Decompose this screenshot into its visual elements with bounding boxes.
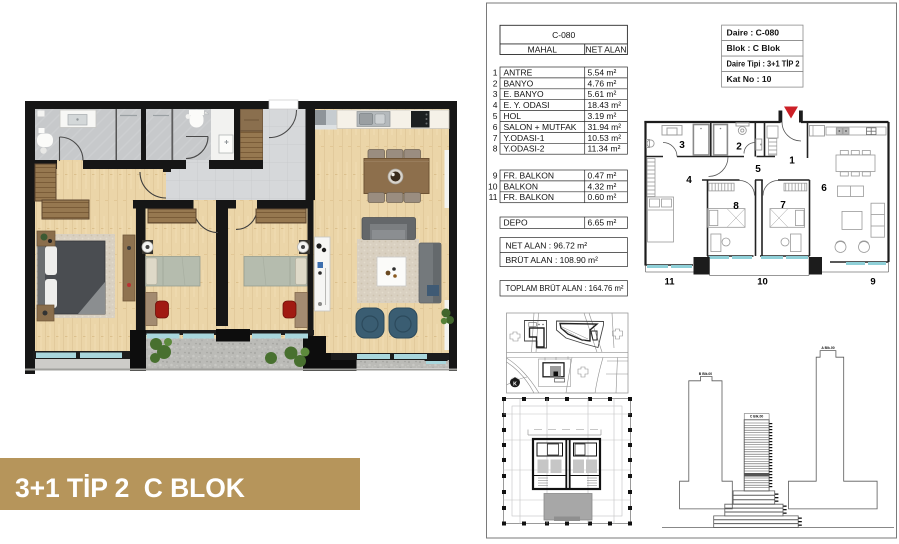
svg-text:FR. BALKON: FR. BALKON <box>504 170 555 180</box>
svg-text:NET ALAN : 96.72 m²: NET ALAN : 96.72 m² <box>506 240 588 250</box>
svg-text:11: 11 <box>489 192 498 202</box>
svg-text:MAHAL: MAHAL <box>528 45 558 55</box>
svg-text:E. Y. ODASI: E. Y. ODASI <box>504 100 550 110</box>
svg-text:BRÜT ALAN : 108.90 m²: BRÜT ALAN : 108.90 m² <box>506 255 599 265</box>
svg-text:0.60 m²: 0.60 m² <box>588 192 617 202</box>
svg-text:Y.ODASI-1: Y.ODASI-1 <box>504 133 545 143</box>
svg-text:FR. BALKON: FR. BALKON <box>504 192 555 202</box>
svg-text:7: 7 <box>493 133 498 143</box>
svg-text:4: 4 <box>686 175 692 186</box>
svg-text:4.32 m²: 4.32 m² <box>588 181 617 191</box>
svg-text:DEPO: DEPO <box>504 218 528 228</box>
svg-text:1: 1 <box>493 67 498 77</box>
svg-text:K: K <box>513 381 517 387</box>
svg-text:ANTRE: ANTRE <box>504 67 533 77</box>
svg-text:4.76 m²: 4.76 m² <box>588 78 617 88</box>
svg-text:4: 4 <box>493 100 498 110</box>
svg-text:6.65 m²: 6.65 m² <box>588 218 617 228</box>
svg-text:1: 1 <box>789 156 795 167</box>
svg-text:C-080: C-080 <box>552 30 575 40</box>
svg-text:5.61 m²: 5.61 m² <box>588 89 617 99</box>
svg-text:TOPLAM BRÜT ALAN : 164.76 m²: TOPLAM BRÜT ALAN : 164.76 m² <box>506 283 624 293</box>
svg-text:3: 3 <box>679 140 685 151</box>
svg-text:3.19 m²: 3.19 m² <box>588 111 617 121</box>
svg-text:SALON + MUTFAK: SALON + MUTFAK <box>504 122 577 132</box>
svg-text:8: 8 <box>493 144 498 154</box>
svg-text:2: 2 <box>493 78 498 88</box>
svg-text:Blok : C Blok: Blok : C Blok <box>727 43 781 53</box>
svg-text:Kat No : 10: Kat No : 10 <box>727 74 772 84</box>
svg-text:6: 6 <box>493 122 498 132</box>
svg-text:Y.ODASI-2: Y.ODASI-2 <box>504 144 545 154</box>
svg-text:5.54 m²: 5.54 m² <box>588 67 617 77</box>
svg-text:8: 8 <box>733 201 739 212</box>
svg-text:6: 6 <box>821 183 827 194</box>
svg-text:A Blk.00: A Blk.00 <box>821 346 834 350</box>
svg-text:BANYO: BANYO <box>504 78 534 88</box>
svg-text:3: 3 <box>493 89 498 99</box>
svg-text:3+1 TİP 2 C BLOK: 3+1 TİP 2 C BLOK <box>15 473 245 503</box>
svg-text:5: 5 <box>493 111 498 121</box>
svg-text:BALKON: BALKON <box>504 181 539 191</box>
svg-text:B Blk.00: B Blk.00 <box>699 372 712 376</box>
svg-text:7: 7 <box>780 200 786 211</box>
svg-text:Daire Tipi : 3+1 TİP 2: Daire Tipi : 3+1 TİP 2 <box>727 59 800 69</box>
svg-text:9: 9 <box>493 170 498 180</box>
svg-text:Daire : C-080: Daire : C-080 <box>727 28 780 38</box>
svg-text:9: 9 <box>870 277 875 288</box>
svg-text:5: 5 <box>755 164 761 175</box>
svg-text:10.53 m²: 10.53 m² <box>588 133 622 143</box>
svg-text:31.94 m²: 31.94 m² <box>588 122 622 132</box>
svg-text:E. BANYO: E. BANYO <box>504 89 545 99</box>
svg-text:2: 2 <box>736 142 742 153</box>
svg-text:C Blk.00: C Blk.00 <box>750 415 763 419</box>
svg-text:NET ALAN: NET ALAN <box>586 45 627 55</box>
svg-text:0.47 m²: 0.47 m² <box>588 170 617 180</box>
svg-text:11.34 m²: 11.34 m² <box>588 144 621 154</box>
svg-text:HOL: HOL <box>504 111 522 121</box>
svg-text:10: 10 <box>757 277 768 288</box>
svg-text:10: 10 <box>488 181 498 191</box>
svg-text:18.43 m²: 18.43 m² <box>588 100 622 110</box>
svg-text:11: 11 <box>664 277 675 288</box>
